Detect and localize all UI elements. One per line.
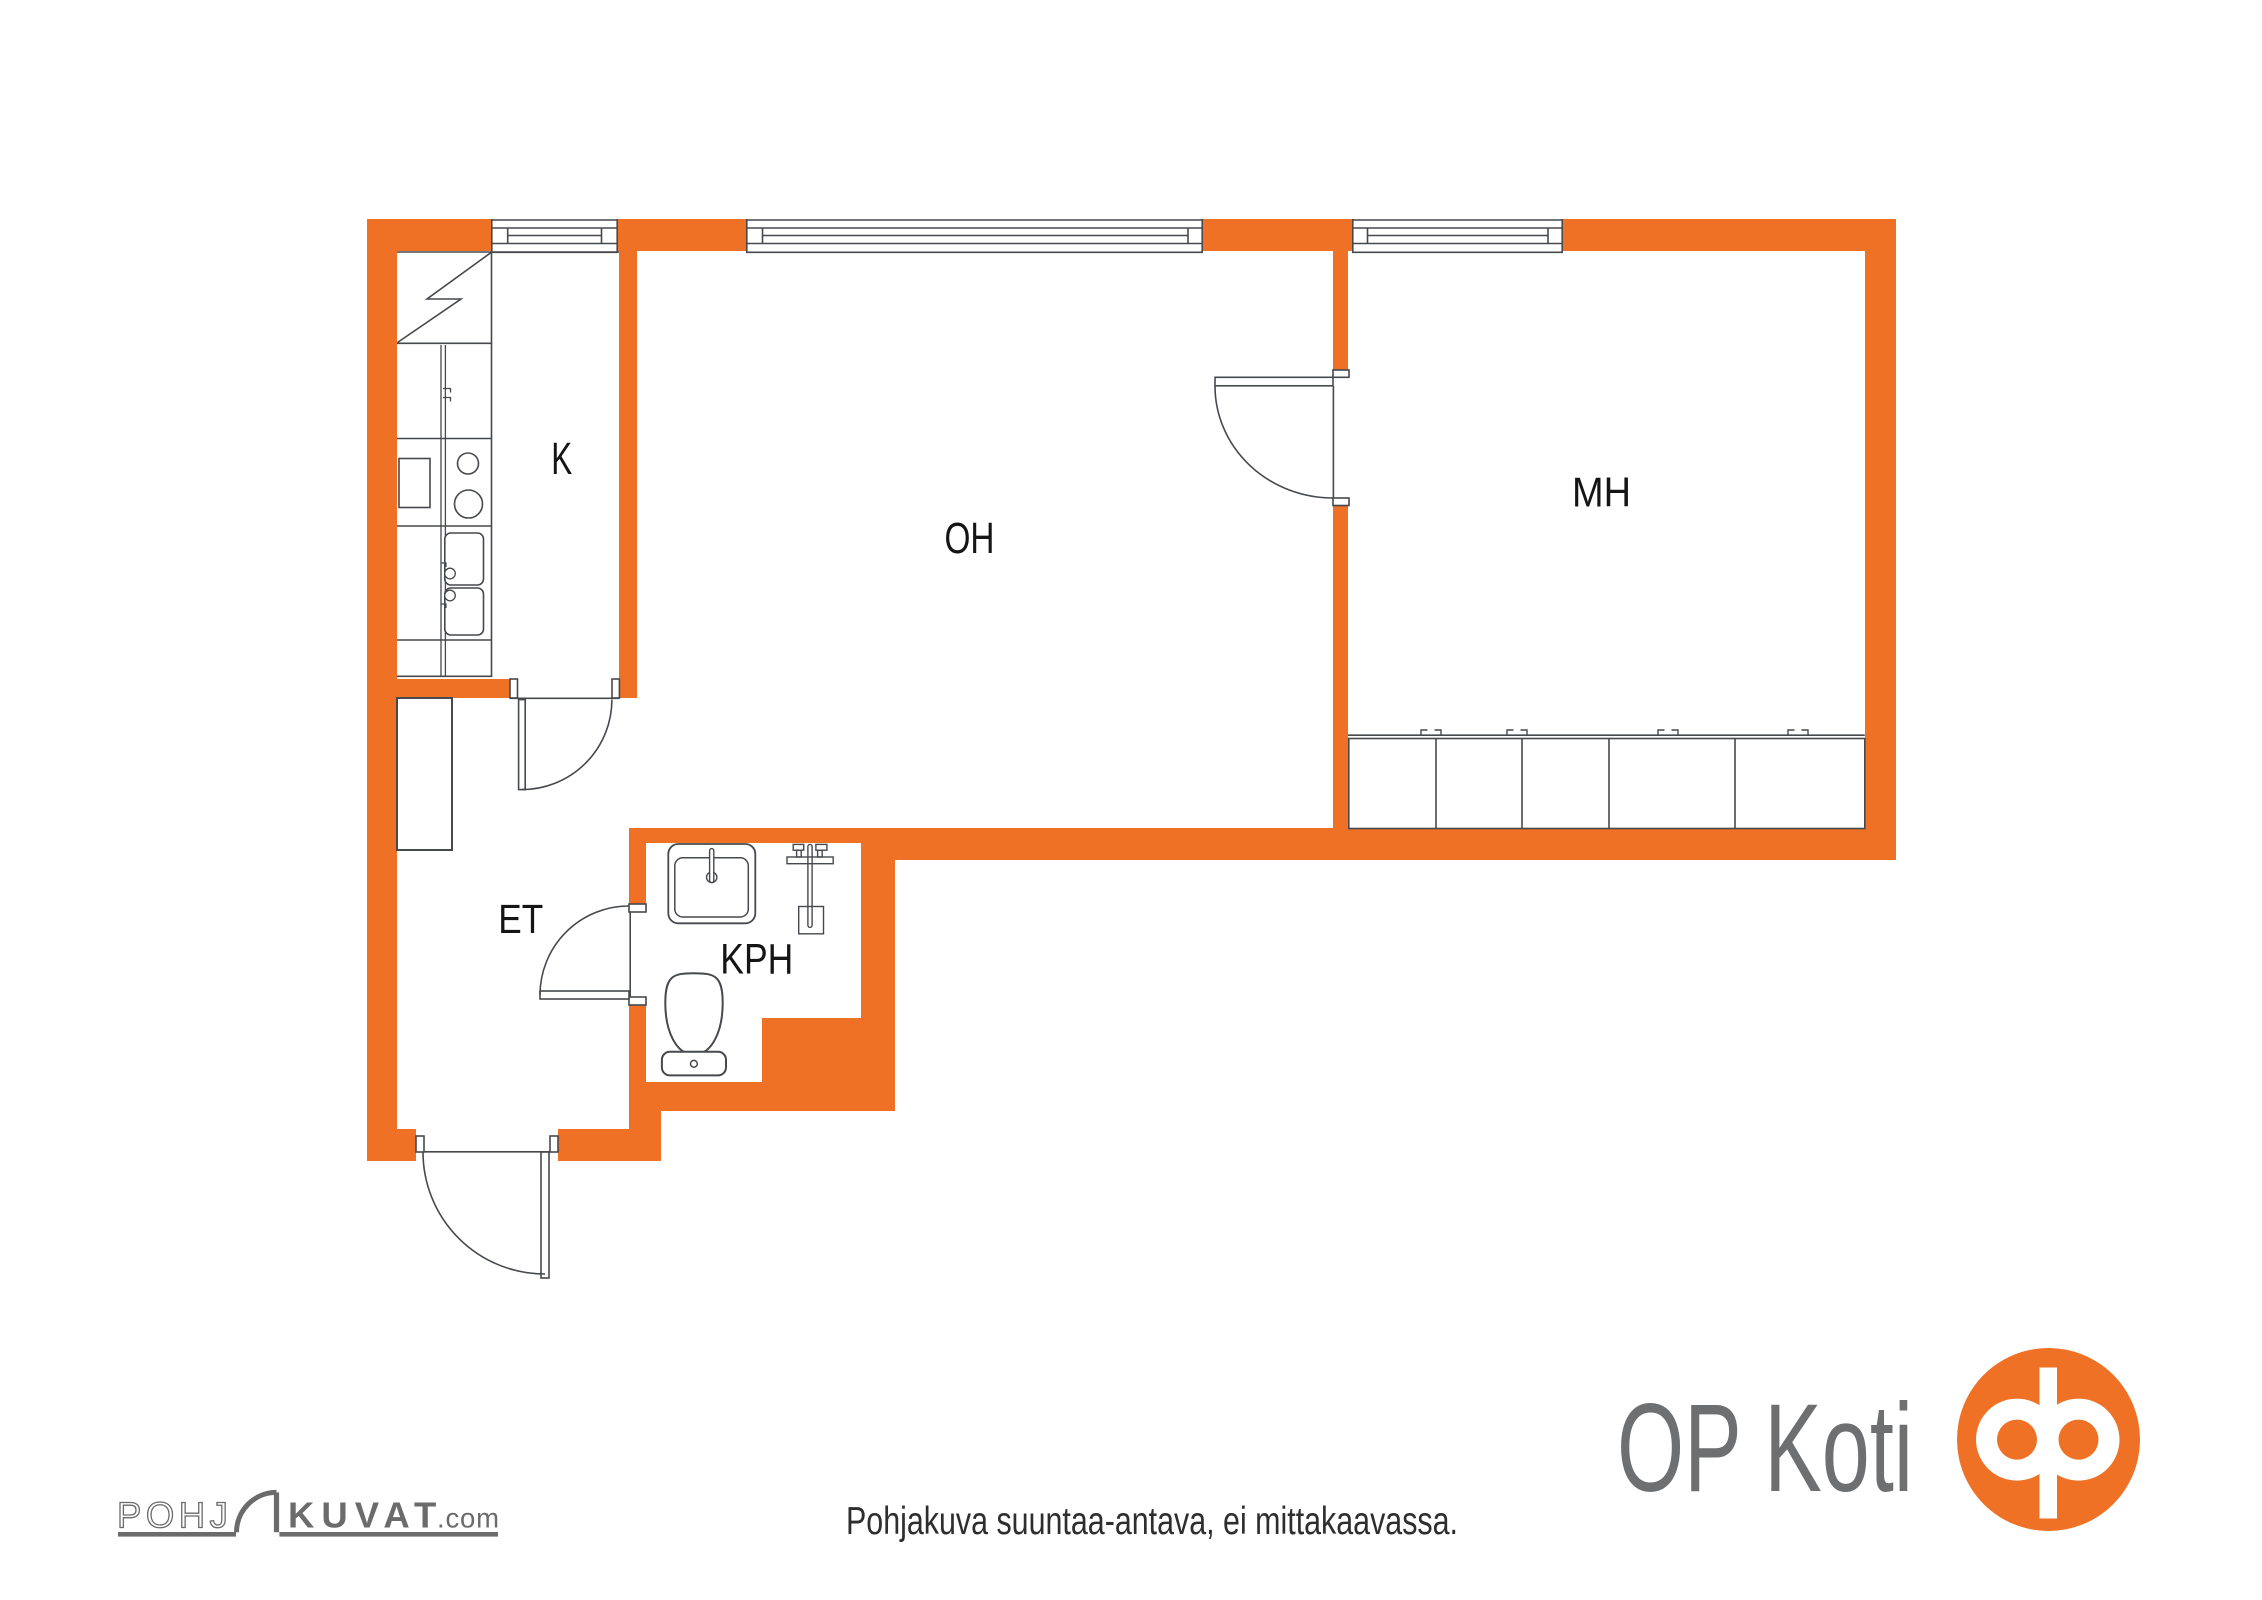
svg-text:Pohjakuva suuntaa-antava, ei m: Pohjakuva suuntaa-antava, ei mittakaavas… bbox=[846, 1500, 1458, 1543]
svg-text:OH: OH bbox=[945, 515, 995, 563]
svg-text:KPH: KPH bbox=[720, 937, 793, 984]
svg-text:POHJ: POHJ bbox=[117, 1495, 232, 1536]
svg-text:OP Koti: OP Koti bbox=[1617, 1379, 1913, 1518]
svg-text:K: K bbox=[551, 433, 572, 484]
svg-text:ET: ET bbox=[498, 896, 543, 942]
svg-text:MH: MH bbox=[1572, 469, 1631, 516]
svg-text:.com: .com bbox=[437, 1503, 500, 1534]
svg-text:KUVAT: KUVAT bbox=[288, 1495, 443, 1536]
